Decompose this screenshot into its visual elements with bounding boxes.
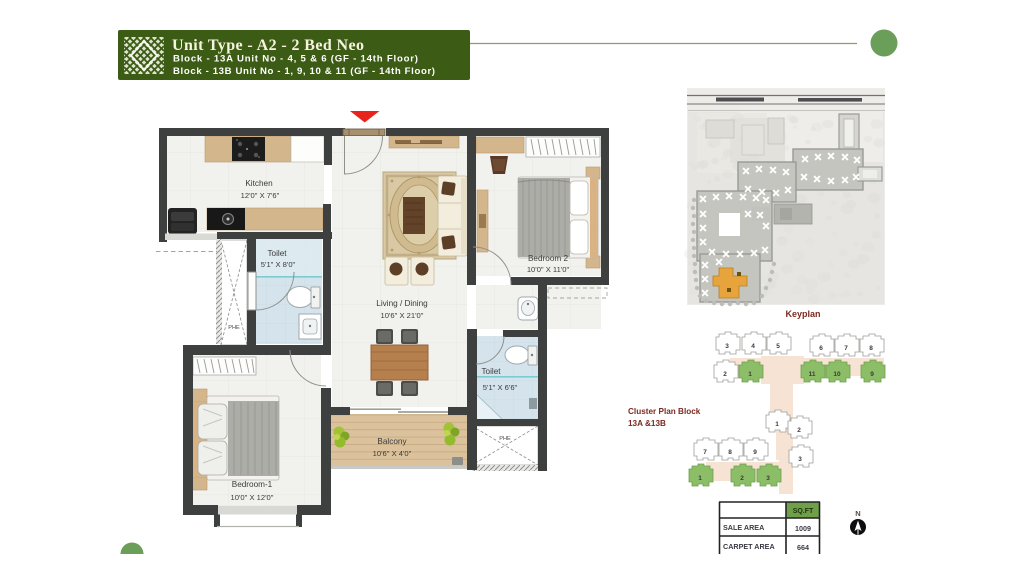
svg-text:3: 3 [725, 343, 729, 350]
svg-text:7: 7 [844, 345, 848, 352]
svg-text:3: 3 [766, 475, 770, 482]
svg-text:Keyplan: Keyplan [785, 309, 820, 319]
svg-text:Balcony: Balcony [377, 437, 407, 446]
svg-text:1: 1 [748, 371, 752, 378]
svg-text:6: 6 [819, 345, 823, 352]
svg-text:SQ.FT: SQ.FT [793, 508, 814, 515]
svg-text:13A &13B: 13A &13B [628, 419, 666, 428]
svg-text:8: 8 [869, 345, 873, 352]
svg-text:10'0" X 11'0": 10'0" X 11'0" [527, 265, 570, 274]
svg-text:12'0" X 7'6": 12'0" X 7'6" [241, 191, 280, 200]
svg-text:10'0" X 12'0": 10'0" X 12'0" [231, 493, 274, 502]
svg-text:Bedroom-1: Bedroom-1 [232, 480, 273, 489]
svg-text:1: 1 [698, 475, 702, 482]
svg-text:PHE: PHE [228, 325, 240, 331]
svg-text:10'6" X 21'0": 10'6" X 21'0" [381, 311, 424, 320]
svg-text:9: 9 [753, 449, 757, 456]
svg-text:10: 10 [833, 371, 841, 378]
svg-text:7: 7 [703, 449, 707, 456]
svg-text:8: 8 [728, 449, 732, 456]
svg-text:3: 3 [798, 456, 802, 463]
svg-text:PHE: PHE [499, 436, 511, 442]
svg-text:5: 5 [776, 343, 780, 350]
svg-text:CARPET AREA: CARPET AREA [723, 542, 775, 551]
svg-text:2: 2 [797, 427, 801, 434]
svg-text:N: N [855, 509, 860, 518]
svg-text:Toilet: Toilet [267, 249, 287, 258]
svg-text:Block - 13A Unit No - 4, 5 & 6: Block - 13A Unit No - 4, 5 & 6 (GF - 14t… [173, 54, 418, 65]
svg-text:Toilet: Toilet [481, 367, 501, 376]
svg-text:Unit Type - A2 - 2 Bed Neo: Unit Type - A2 - 2 Bed Neo [172, 37, 364, 54]
svg-text:Bedroom 2: Bedroom 2 [528, 254, 568, 263]
svg-text:2: 2 [723, 371, 727, 378]
svg-text:1009: 1009 [795, 524, 811, 533]
svg-text:4: 4 [751, 343, 755, 350]
svg-text:10'6" X 4'0": 10'6" X 4'0" [373, 449, 412, 458]
svg-text:11: 11 [809, 371, 816, 378]
svg-text:Kitchen: Kitchen [245, 179, 273, 188]
svg-text:Living / Dining: Living / Dining [376, 299, 428, 308]
svg-text:5'1" X 8'0": 5'1" X 8'0" [261, 260, 296, 269]
svg-text:1: 1 [775, 421, 779, 428]
svg-text:9: 9 [870, 371, 874, 378]
svg-text:Block - 13B Unit No - 1, 9, 10: Block - 13B Unit No - 1, 9, 10 & 11 (GF … [173, 66, 435, 77]
svg-text:2: 2 [740, 475, 744, 482]
svg-text:Cluster Plan Block: Cluster Plan Block [628, 407, 701, 416]
svg-text:664: 664 [797, 543, 809, 552]
svg-text:5'1" X 6'6": 5'1" X 6'6" [483, 383, 518, 392]
svg-text:SALE AREA: SALE AREA [723, 523, 764, 532]
